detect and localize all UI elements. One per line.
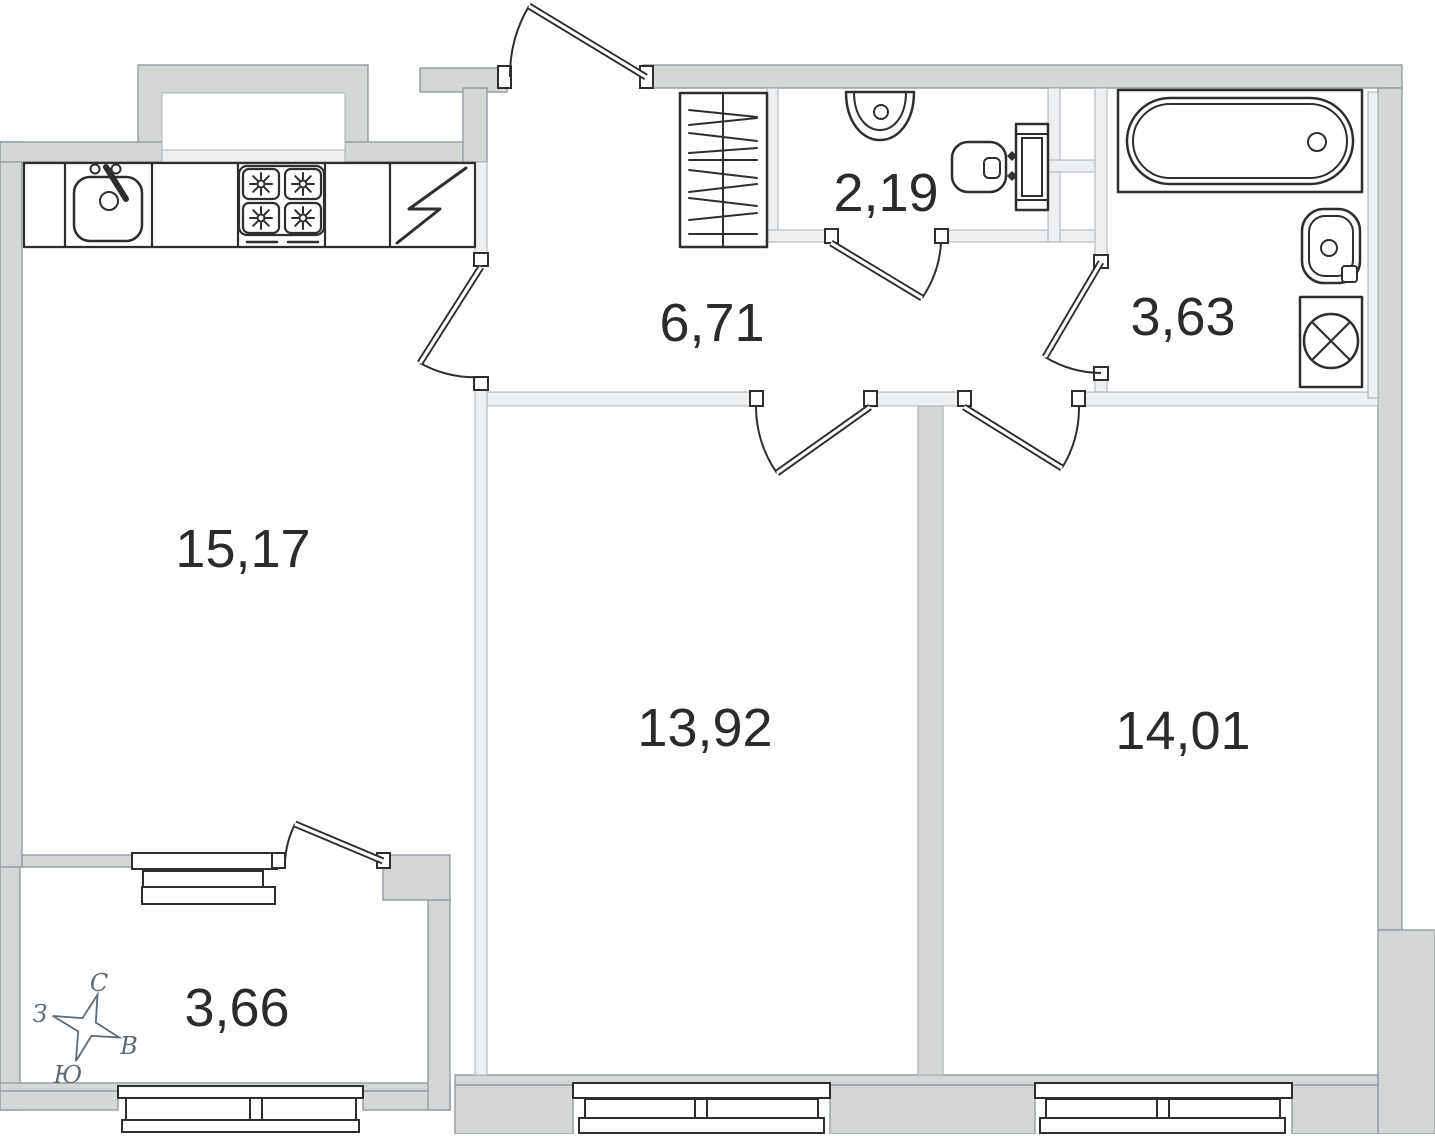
toilet-icon bbox=[952, 124, 1048, 210]
wall-segment bbox=[475, 162, 487, 266]
compass-star-icon bbox=[53, 995, 120, 1061]
wall-segment bbox=[428, 900, 450, 1110]
washbasin-icon bbox=[1302, 209, 1360, 283]
wall-segment bbox=[877, 392, 958, 406]
bedroom-1-window bbox=[573, 1083, 830, 1133]
wall-segment bbox=[1095, 88, 1107, 258]
window-sill bbox=[162, 150, 345, 162]
bedroom-2-door bbox=[958, 391, 1085, 468]
entrance-door bbox=[498, 6, 653, 88]
wall-segment bbox=[0, 867, 20, 1110]
kitchen-door bbox=[420, 253, 488, 390]
balcony-door bbox=[272, 824, 390, 868]
wall-segment bbox=[455, 1085, 573, 1134]
wall-segment bbox=[475, 377, 487, 1075]
wc-door bbox=[825, 229, 948, 298]
compass-rose: С З В Ю bbox=[33, 969, 138, 1089]
wall-segment bbox=[463, 88, 487, 162]
wall-segment bbox=[918, 398, 943, 1075]
room-labels: 15,17 6,71 2,19 3,63 13,92 14,01 3,66 bbox=[175, 163, 1250, 1038]
wall-segment bbox=[935, 230, 1095, 242]
room-area-bedroom-1: 13,92 bbox=[637, 698, 772, 758]
living-room-window bbox=[132, 853, 277, 904]
wardrobe-icon bbox=[680, 93, 767, 247]
compass-west-label: З bbox=[33, 1000, 48, 1028]
room-area-bathroom: 3,63 bbox=[1130, 287, 1235, 347]
windows bbox=[118, 853, 1292, 1133]
wall-segment bbox=[1378, 88, 1402, 930]
stove-icon bbox=[239, 166, 324, 242]
room-area-hallway: 6,71 bbox=[659, 293, 764, 353]
wall-segment bbox=[22, 855, 132, 867]
wall-segment bbox=[1075, 392, 1378, 406]
wall-segment bbox=[767, 88, 778, 240]
compass-south-label: Ю bbox=[53, 1061, 83, 1089]
room-area-bedroom-2: 14,01 bbox=[1115, 701, 1250, 761]
wall-segment bbox=[643, 65, 1402, 88]
compass-north-label: С bbox=[90, 969, 108, 997]
room-area-balcony: 3,66 bbox=[184, 978, 289, 1038]
wall-lining bbox=[1368, 92, 1378, 398]
bathtub-icon bbox=[1118, 90, 1362, 192]
bedroom-2-window bbox=[1035, 1083, 1292, 1133]
floor-plan-canvas: 15,17 6,71 2,19 3,63 13,92 14,01 3,66 С … bbox=[0, 0, 1435, 1134]
bathroom-door bbox=[1045, 255, 1108, 380]
floor-plan-page: 15,17 6,71 2,19 3,63 13,92 14,01 3,66 С … bbox=[0, 0, 1435, 1134]
window-niche bbox=[162, 93, 345, 150]
wall-segment bbox=[1292, 1085, 1378, 1134]
wall-segment bbox=[487, 392, 762, 406]
compass-east-label: В bbox=[119, 1032, 138, 1060]
washing-machine-icon bbox=[1300, 297, 1362, 387]
wall-segment bbox=[830, 1085, 1035, 1134]
wall-segment bbox=[0, 142, 22, 867]
balcony-window bbox=[118, 1086, 363, 1132]
wc-sink-icon bbox=[846, 92, 914, 140]
room-area-kitchen-living: 15,17 bbox=[175, 519, 310, 579]
wall-segment bbox=[0, 1091, 118, 1110]
wall-segment bbox=[383, 855, 450, 900]
room-area-wc: 2,19 bbox=[833, 163, 938, 223]
bedroom-1-door bbox=[750, 391, 877, 473]
wall-segment bbox=[1378, 930, 1435, 1134]
